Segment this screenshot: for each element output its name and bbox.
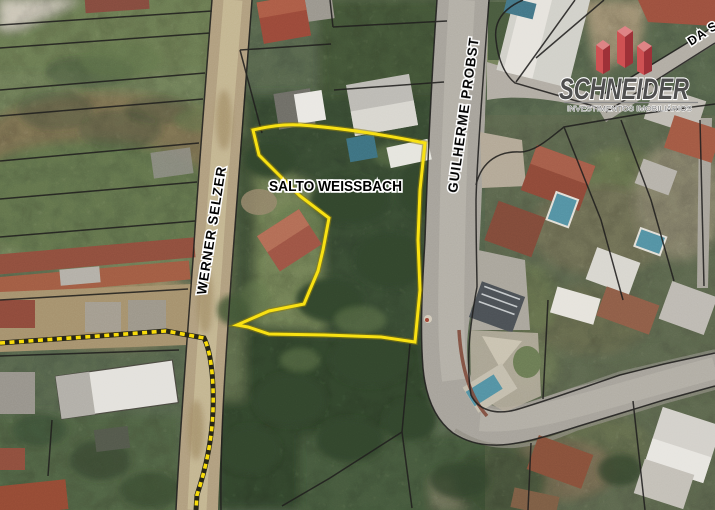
svg-text:SALTO WEISSBACH: SALTO WEISSBACH: [269, 179, 402, 195]
svg-text:INVESTIMENTOS IMOBILIÁRIOS: INVESTIMENTOS IMOBILIÁRIOS: [567, 104, 692, 113]
svg-text:SCHNEIDER: SCHNEIDER: [559, 73, 689, 106]
